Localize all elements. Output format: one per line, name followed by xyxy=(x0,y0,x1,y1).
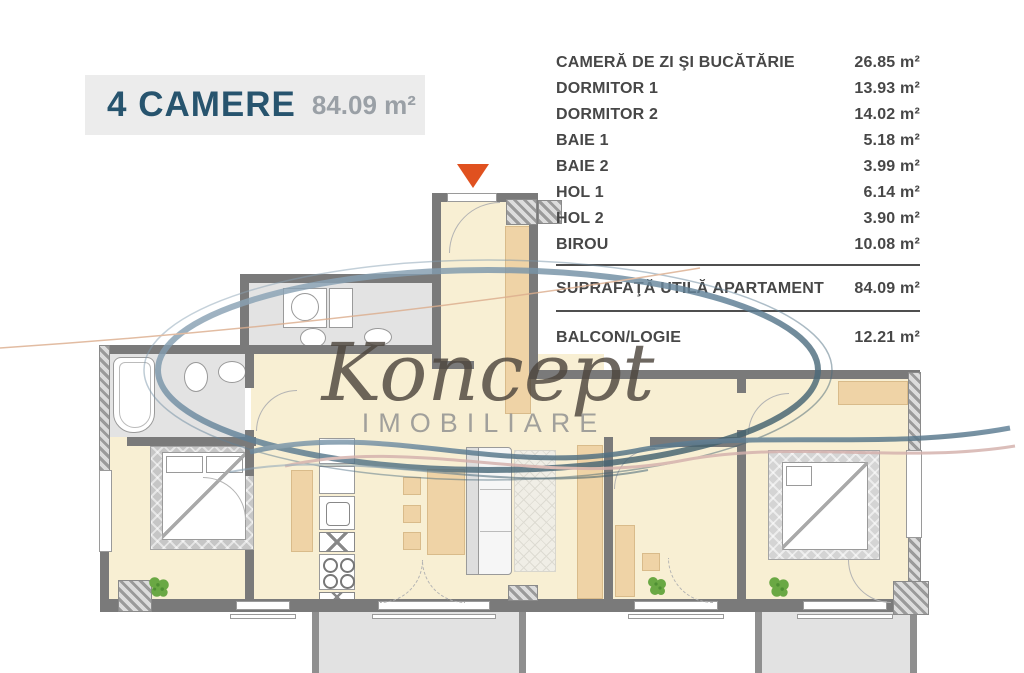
stove-burner xyxy=(340,574,355,589)
bathtub-inner xyxy=(119,362,151,428)
window-sill xyxy=(372,614,496,619)
wall xyxy=(245,430,254,476)
wall-hatched xyxy=(99,345,110,471)
sofa-back xyxy=(466,447,479,575)
wall xyxy=(737,430,746,612)
room-label: CAMERĂ DE ZI ŞI BUCĂTĂRIE xyxy=(556,54,795,72)
wall xyxy=(737,379,746,393)
legend-row: BAIE 23.99 m² xyxy=(556,154,920,180)
room-label: BAIE 2 xyxy=(556,158,609,176)
title-badge: 4 CAMERE 84.09 m² xyxy=(85,75,425,135)
window xyxy=(378,601,490,610)
dresser xyxy=(838,381,908,405)
room-area: 5.18 m² xyxy=(863,132,920,150)
plant-icon xyxy=(645,574,669,598)
bath2-cabinet xyxy=(329,288,353,328)
window xyxy=(906,450,922,538)
wall xyxy=(240,274,439,283)
room-area: 6.14 m² xyxy=(863,184,920,202)
legend-row: BAIE 15.18 m² xyxy=(556,128,920,154)
legend-balcony-row: BALCON/LOGIE12.21 m² xyxy=(556,312,920,350)
balcony-label: BALCON/LOGIE xyxy=(556,329,681,347)
room-area: 3.90 m² xyxy=(863,210,920,228)
legend-row: HOL 16.14 m² xyxy=(556,180,920,206)
window xyxy=(236,601,290,610)
window-sill xyxy=(230,614,296,619)
chair xyxy=(403,505,421,523)
plant-icon xyxy=(146,574,172,600)
wall xyxy=(432,361,474,369)
chair xyxy=(403,477,421,495)
room-legend: CAMERĂ DE ZI ŞI BUCĂTĂRIE26.85 m² DORMIT… xyxy=(556,50,920,350)
window-sill xyxy=(797,614,893,619)
wall xyxy=(245,354,254,388)
wall xyxy=(240,274,249,354)
balcony-area: 12.21 m² xyxy=(854,329,920,347)
page-title-area: 84.09 m² xyxy=(312,90,416,121)
wall xyxy=(100,345,439,354)
legend-total-row: SUPRAFAŢĂ UTILĂ APARTAMENT84.09 m² xyxy=(556,266,920,304)
floorplan-page: 4 CAMERE 84.09 m² CAMERĂ DE ZI ŞI BUCĂTĂ… xyxy=(0,0,1024,673)
stove-burner xyxy=(323,558,338,573)
balcony xyxy=(312,612,526,673)
bed-blanket-fold xyxy=(782,462,868,550)
wall-hatched xyxy=(508,585,538,601)
washing-machine-drum xyxy=(291,293,319,321)
chair xyxy=(642,553,660,571)
dining-table xyxy=(427,469,465,555)
sink xyxy=(364,328,392,346)
room-area: 13.93 m² xyxy=(854,80,920,98)
wall-hatched xyxy=(893,581,929,615)
wall-hatched xyxy=(506,199,537,225)
wall xyxy=(604,437,613,612)
room-area: 3.99 m² xyxy=(863,158,920,176)
wardrobe xyxy=(505,226,531,414)
legend-row: BIROU10.08 m² xyxy=(556,232,920,258)
sofa-cushion-line xyxy=(480,489,511,490)
entrance-door xyxy=(447,193,497,202)
kitchen-sink-basin xyxy=(326,502,350,526)
fridge xyxy=(319,438,355,464)
stove-burner xyxy=(340,558,355,573)
kitchen-cabinet-x xyxy=(319,532,355,552)
wall xyxy=(650,437,746,447)
room-label: HOL 1 xyxy=(556,184,604,202)
living-rug xyxy=(514,450,556,572)
window xyxy=(803,601,887,610)
room-area: 26.85 m² xyxy=(854,54,920,72)
kitchen-counter xyxy=(291,470,313,552)
room-label: DORMITOR 2 xyxy=(556,106,658,124)
window-sill xyxy=(628,614,724,619)
window xyxy=(99,470,112,552)
page-title: 4 CAMERE xyxy=(107,85,296,125)
room-label: HOL 2 xyxy=(556,210,604,228)
room-label: BIROU xyxy=(556,236,609,254)
wall xyxy=(127,437,256,446)
sofa-cushion-line xyxy=(480,531,511,532)
wardrobe xyxy=(577,445,603,599)
legend-row: CAMERĂ DE ZI ŞI BUCĂTĂRIE26.85 m² xyxy=(556,50,920,76)
room-label: DORMITOR 1 xyxy=(556,80,658,98)
sink xyxy=(218,361,246,383)
room-area: 14.02 m² xyxy=(854,106,920,124)
wall xyxy=(538,370,920,379)
kitchen-cabinet xyxy=(319,466,355,494)
wall xyxy=(245,550,254,599)
total-label: SUPRAFAŢĂ UTILĂ APARTAMENT xyxy=(556,280,824,298)
legend-row: DORMITOR 113.93 m² xyxy=(556,76,920,102)
stove-burner xyxy=(323,574,338,589)
desk xyxy=(615,525,635,597)
room-area: 10.08 m² xyxy=(854,236,920,254)
chair xyxy=(403,532,421,550)
legend-row: HOL 23.90 m² xyxy=(556,206,920,232)
toilet xyxy=(184,362,208,392)
legend-row: DORMITOR 214.02 m² xyxy=(556,102,920,128)
entrance-arrow-icon xyxy=(457,164,489,188)
room-label: BAIE 1 xyxy=(556,132,609,150)
balcony xyxy=(755,612,917,673)
total-area: 84.09 m² xyxy=(854,280,920,298)
plant-icon xyxy=(766,574,792,600)
